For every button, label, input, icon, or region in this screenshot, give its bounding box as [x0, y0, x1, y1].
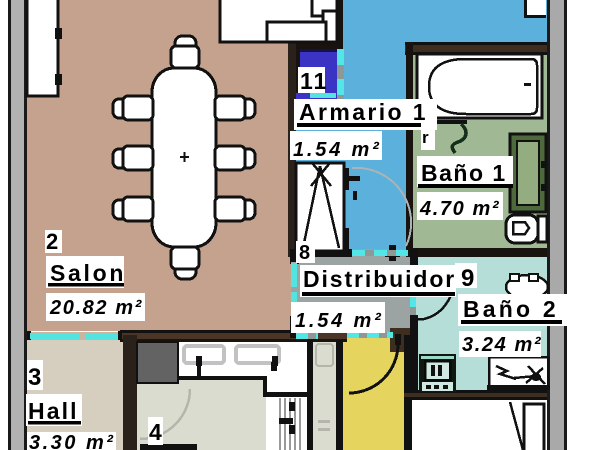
svg-text:Distribuidor: Distribuidor	[303, 266, 456, 292]
svg-text:20.82 m²: 20.82 m²	[49, 297, 143, 319]
svg-text:Hall: Hall	[28, 398, 79, 424]
svg-text:r: r	[422, 128, 429, 147]
svg-text:3.30 m²: 3.30 m²	[29, 432, 115, 450]
svg-text:4.70 m²: 4.70 m²	[419, 198, 500, 220]
svg-text:3.24 m²: 3.24 m²	[462, 334, 542, 356]
svg-text:4: 4	[149, 419, 162, 445]
svg-text:Baño 1: Baño 1	[421, 160, 507, 186]
svg-text:11: 11	[300, 68, 328, 94]
svg-text:1.54 m²: 1.54 m²	[295, 310, 384, 332]
svg-text:3: 3	[28, 364, 41, 391]
svg-text:2: 2	[46, 229, 58, 254]
svg-text:8: 8	[299, 242, 310, 264]
svg-text:9: 9	[461, 265, 474, 292]
svg-text:Baño 2: Baño 2	[463, 296, 559, 322]
svg-text:1.54 m²: 1.54 m²	[293, 139, 382, 161]
svg-text:Salon: Salon	[50, 260, 126, 286]
svg-text:Armario 1: Armario 1	[299, 99, 428, 125]
